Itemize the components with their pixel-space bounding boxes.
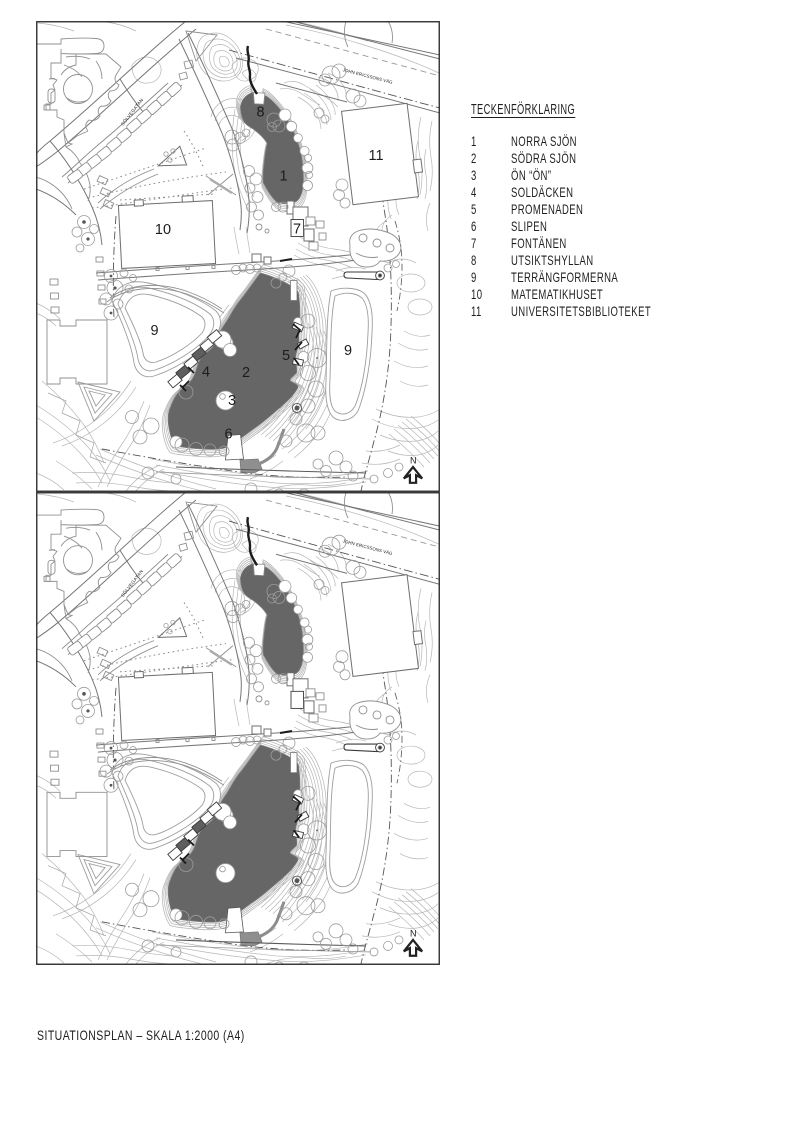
svg-text:10: 10 [155, 222, 171, 238]
svg-text:7: 7 [293, 222, 301, 238]
svg-text:6: 6 [224, 427, 232, 443]
svg-text:9: 9 [344, 343, 352, 359]
svg-text:11: 11 [368, 148, 383, 164]
svg-text:1: 1 [279, 169, 287, 185]
svg-text:2: 2 [242, 365, 250, 381]
svg-text:4: 4 [202, 365, 210, 381]
svg-text:8: 8 [256, 105, 264, 121]
svg-text:5: 5 [282, 348, 290, 364]
svg-text:3: 3 [228, 393, 236, 409]
svg-text:9: 9 [150, 323, 158, 339]
